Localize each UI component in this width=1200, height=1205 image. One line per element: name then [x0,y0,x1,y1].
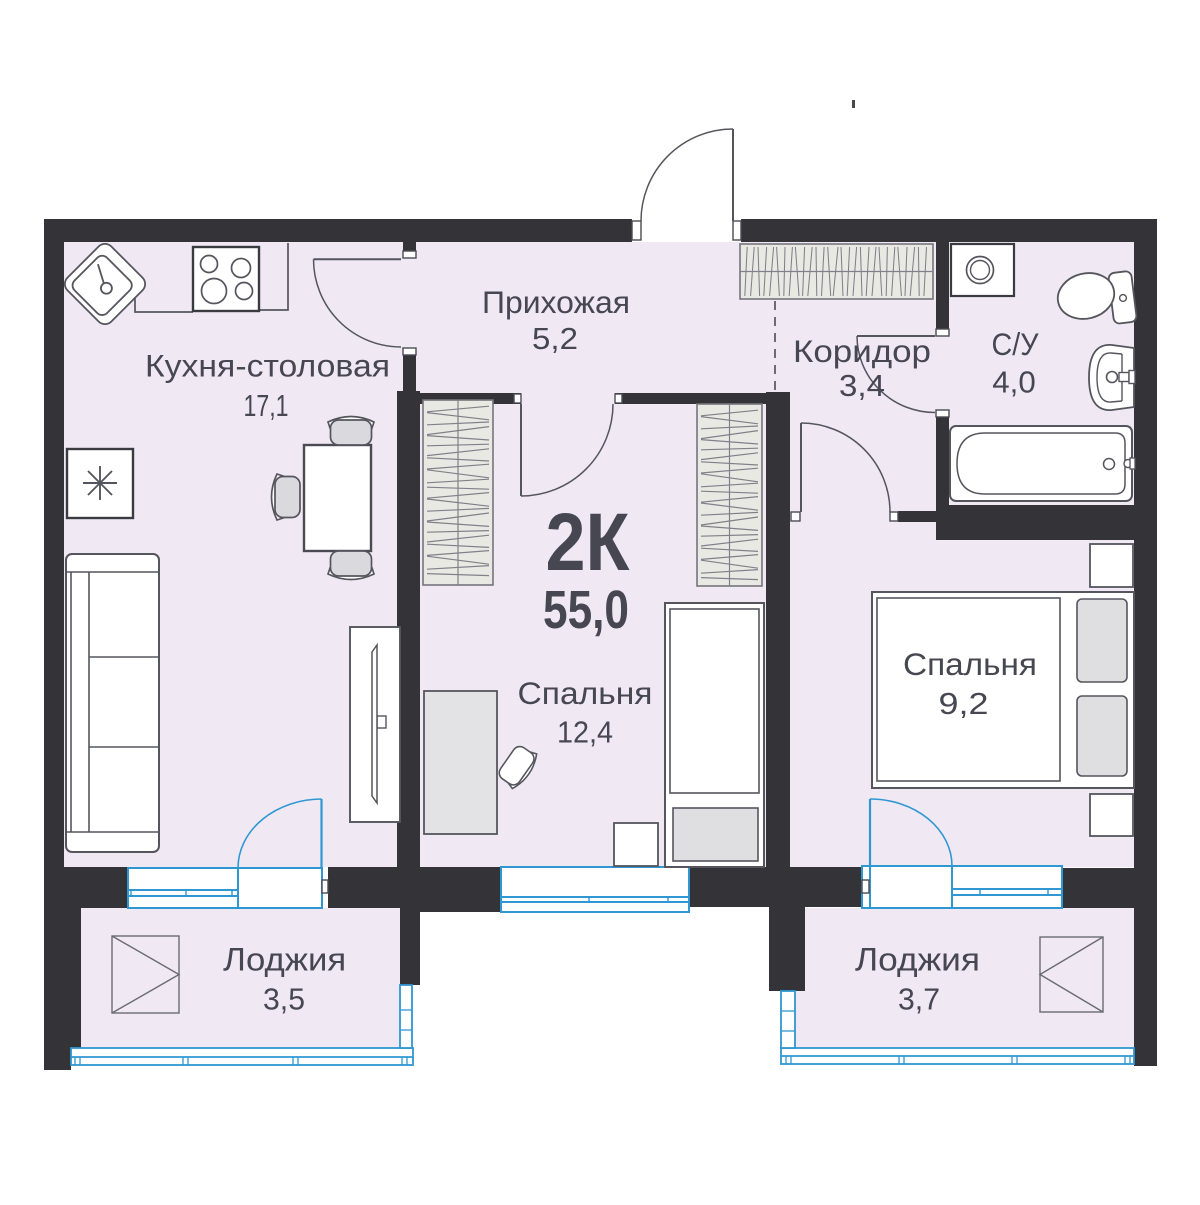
svg-text:17,1: 17,1 [244,388,289,423]
svg-text:Кухня-столовая: Кухня-столовая [145,348,390,384]
svg-text:12,4: 12,4 [557,715,613,750]
svg-text:Лоджия: Лоджия [223,942,346,978]
svg-text:3,5: 3,5 [263,982,305,1017]
svg-text:3,4: 3,4 [839,368,885,403]
svg-text:55,0: 55,0 [543,580,629,640]
svg-text:Спальня: Спальня [518,675,653,711]
svg-text:3,7: 3,7 [898,982,940,1017]
svg-text:Коридор: Коридор [793,333,931,369]
svg-text:Спальня: Спальня [903,646,1037,682]
svg-text:5,2: 5,2 [532,321,578,356]
svg-text:Прихожая: Прихожая [482,284,630,320]
svg-text:С/У: С/У [992,326,1040,362]
svg-text:Лоджия: Лоджия [855,942,980,978]
svg-text:2К: 2К [546,497,631,588]
svg-text:9,2: 9,2 [939,686,989,721]
svg-text:4,0: 4,0 [992,365,1036,400]
